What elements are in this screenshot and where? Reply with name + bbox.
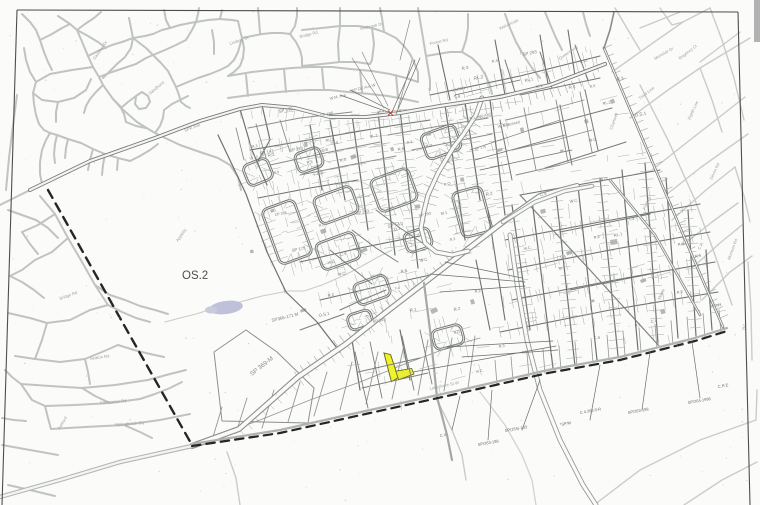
svg-text:OS.2: OS.2 xyxy=(182,270,208,282)
